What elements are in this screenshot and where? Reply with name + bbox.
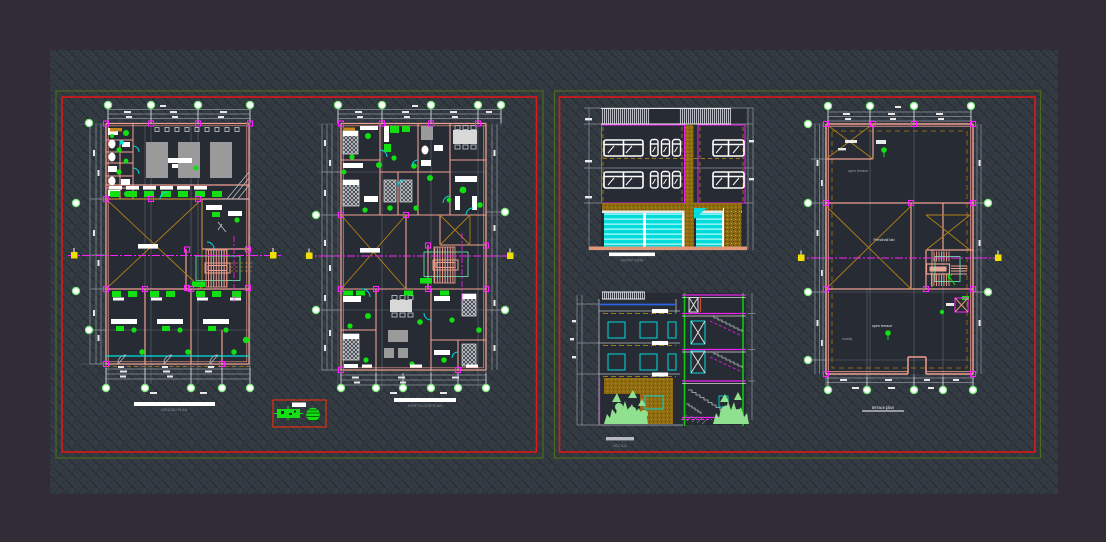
svg-text:SEC A-A: SEC A-A [613, 444, 627, 448]
svg-text:mumty: mumty [842, 337, 852, 341]
svg-text:FRONT VIEW: FRONT VIEW [621, 259, 644, 263]
svg-text:open terrace: open terrace [872, 324, 892, 328]
svg-text:GROUND PLAN: GROUND PLAN [161, 408, 188, 412]
svg-text:terrace plan: terrace plan [872, 405, 895, 410]
svg-text:Pendhall lab: Pendhall lab [874, 238, 895, 242]
svg-text:FIRST FLOOR PLAN: FIRST FLOOR PLAN [408, 404, 442, 408]
svg-text:open terrace: open terrace [848, 169, 868, 173]
